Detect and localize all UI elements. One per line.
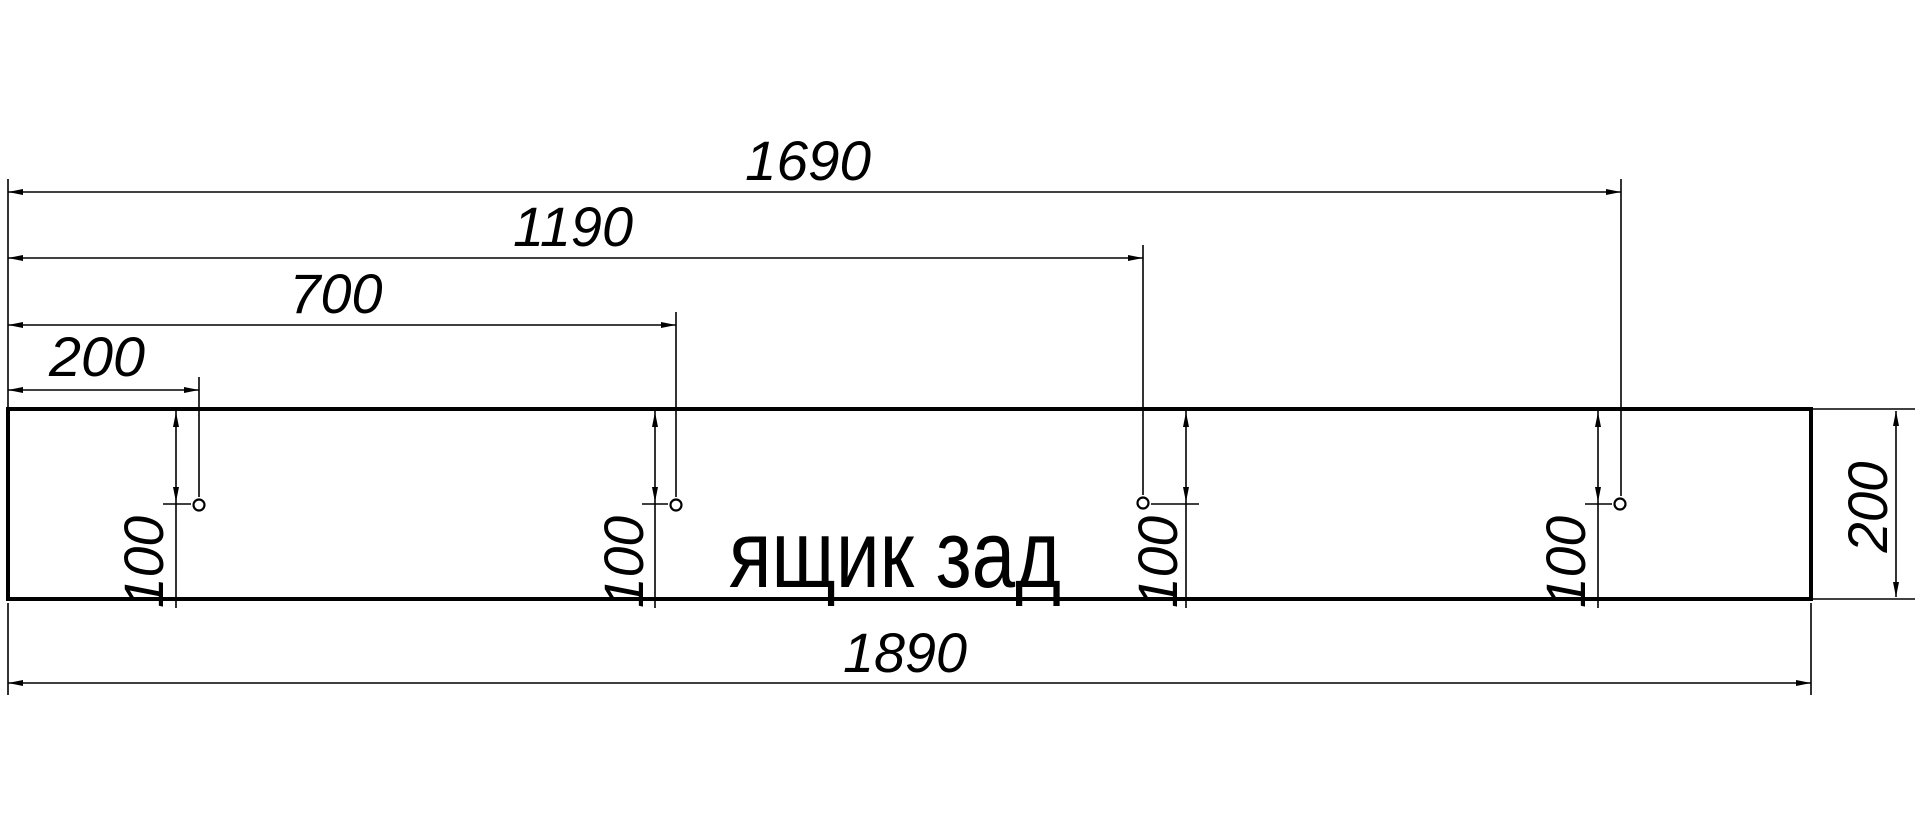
- dim-arrow: [1183, 487, 1189, 502]
- dim-value-label: 200: [1836, 462, 1899, 554]
- dim-arrow: [173, 487, 179, 502]
- dim-arrow: [184, 387, 199, 393]
- dimension-geometry-layer: 169011907002001001001001001890200: [8, 129, 1915, 695]
- dim-arrow: [8, 189, 23, 195]
- dim-arrow: [652, 412, 658, 427]
- dim-value-label: 1890: [843, 621, 967, 684]
- dim-arrow: [1128, 255, 1143, 261]
- dim-arrow: [1595, 412, 1601, 427]
- dim-arrow: [1183, 412, 1189, 427]
- hole-marker: [194, 500, 205, 511]
- dim-arrow: [1893, 411, 1899, 426]
- dim-value-label: 1690: [745, 129, 871, 192]
- hole-marker: [1615, 499, 1626, 510]
- panel-technical-drawing: 169011907002001001001001001890200 ящик з…: [0, 0, 1915, 835]
- dim-arrow: [8, 680, 23, 686]
- dim-arrow: [8, 322, 23, 328]
- dim-value-label: 100: [112, 516, 175, 608]
- dim-arrow: [1893, 582, 1899, 597]
- dim-value-label: 100: [592, 516, 655, 608]
- dim-value-label: 1190: [513, 195, 633, 258]
- dim-arrow: [1595, 487, 1601, 502]
- dim-value-label: 700: [290, 262, 383, 325]
- dim-value-label: 100: [1534, 516, 1597, 608]
- dim-arrow: [1796, 680, 1811, 686]
- hole-marker: [671, 500, 682, 511]
- dim-arrow: [8, 255, 23, 261]
- dim-value-label: 100: [1126, 516, 1189, 608]
- drawing-page: 169011907002001001001001001890200 ящик з…: [0, 0, 1915, 835]
- part-title-label: ящик зад: [729, 501, 1061, 608]
- dim-value-label: 200: [48, 325, 145, 388]
- dim-arrow: [661, 322, 676, 328]
- dim-arrow: [8, 387, 23, 393]
- dim-arrow: [173, 412, 179, 427]
- dim-arrow: [652, 487, 658, 502]
- hole-marker: [1138, 498, 1149, 509]
- dim-arrow: [1606, 189, 1621, 195]
